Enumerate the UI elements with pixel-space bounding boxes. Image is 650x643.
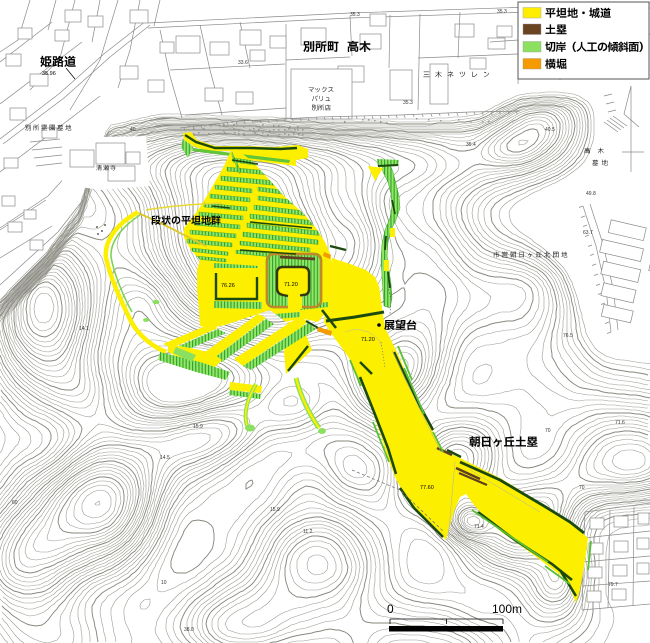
svg-text:71.20: 71.20 [284,282,298,288]
svg-text:79.7: 79.7 [608,582,618,588]
svg-text:49.8: 49.8 [586,191,596,197]
svg-text:15.9: 15.9 [193,424,203,430]
svg-text:0: 0 [387,602,394,616]
svg-text:71.6: 71.6 [615,420,625,426]
svg-text:70: 70 [579,485,585,491]
svg-text:35.3: 35.3 [403,100,413,106]
svg-text:63.7: 63.7 [583,230,593,236]
svg-text:100m: 100m [492,602,522,616]
svg-text:60: 60 [12,500,18,506]
svg-text:35.96: 35.96 [42,71,56,77]
svg-text:38.0: 38.0 [184,627,194,633]
svg-text:77.60: 77.60 [420,485,434,491]
svg-text:33.6: 33.6 [238,60,248,66]
svg-text:71.20: 71.20 [361,337,375,343]
svg-text:35.3: 35.3 [497,9,507,15]
svg-text:15.9: 15.9 [270,507,280,513]
svg-text:71.4: 71.4 [474,524,484,530]
svg-text:70: 70 [545,428,551,434]
svg-text:76.26: 76.26 [221,283,235,289]
svg-text:35.4: 35.4 [466,142,476,148]
svg-text:40.5: 40.5 [545,127,555,133]
svg-text:14.5: 14.5 [160,455,170,461]
svg-text:76.5: 76.5 [563,333,573,339]
svg-text:35.3: 35.3 [350,12,360,18]
svg-text:40: 40 [130,127,136,133]
svg-text:14.1: 14.1 [79,326,89,332]
svg-text:11.2: 11.2 [303,529,313,535]
svg-text:10: 10 [161,580,167,586]
